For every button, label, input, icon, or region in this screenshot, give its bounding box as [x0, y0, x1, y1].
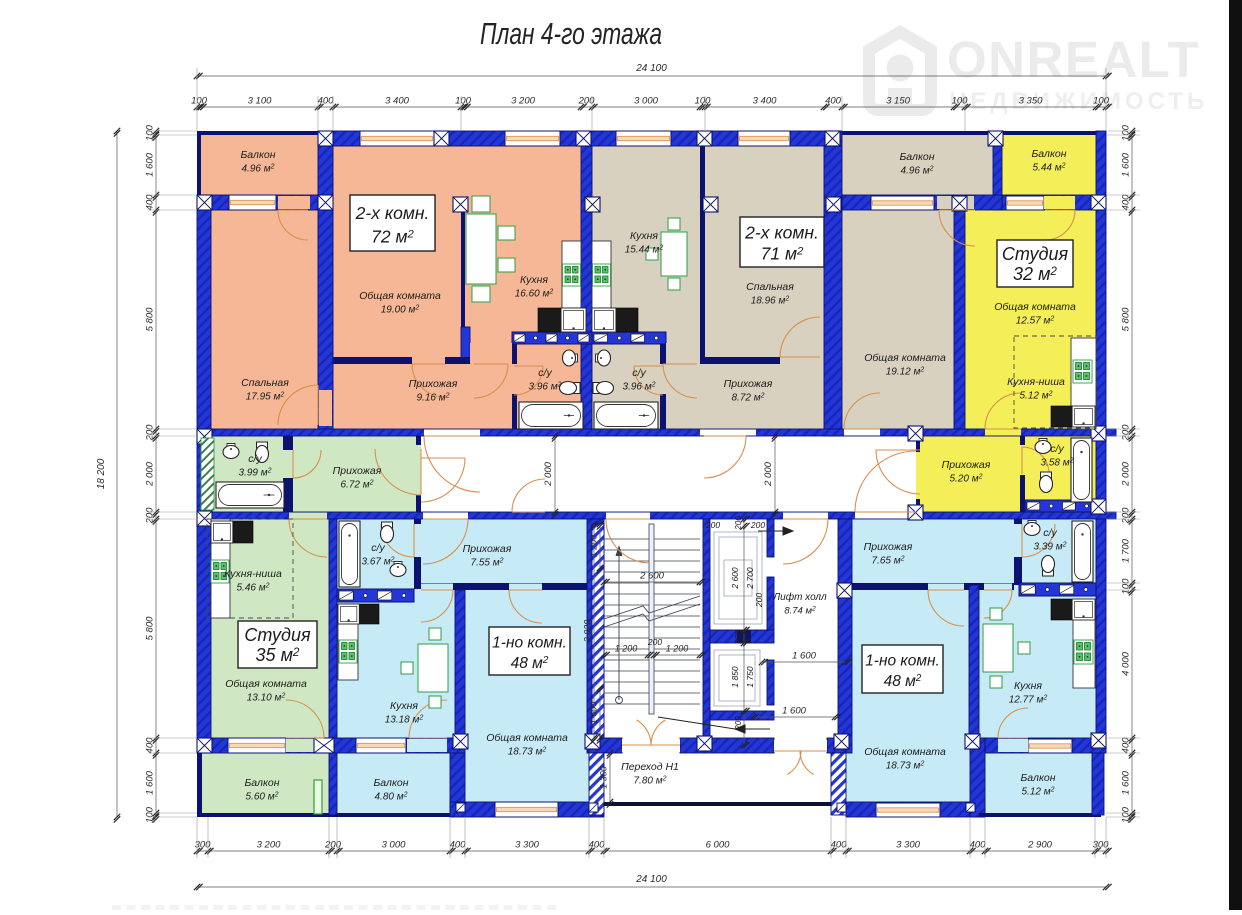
svg-text:400: 400: [970, 840, 987, 851]
svg-text:1 600: 1 600: [1121, 770, 1132, 794]
svg-text:с/у: с/у: [1050, 443, 1064, 455]
svg-text:ONREALT: ONREALT: [947, 31, 1200, 88]
svg-text:1 300: 1 300: [599, 766, 609, 789]
svg-text:13.18 м2: 13.18 м2: [385, 715, 424, 726]
svg-text:6 000: 6 000: [706, 840, 730, 851]
svg-text:1 850: 1 850: [730, 666, 740, 688]
svg-text:200: 200: [578, 96, 596, 107]
svg-text:3 300: 3 300: [896, 840, 920, 851]
svg-text:3.99 м2: 3.99 м2: [238, 468, 271, 479]
svg-text:100: 100: [952, 96, 969, 107]
svg-text:3 400: 3 400: [385, 96, 409, 107]
svg-text:5 800: 5 800: [145, 616, 156, 640]
svg-text:1 600: 1 600: [145, 770, 156, 794]
svg-text:200: 200: [1121, 424, 1132, 442]
svg-text:План 4-го этажа: План 4-го этажа: [480, 16, 662, 51]
svg-text:Спальная: Спальная: [746, 281, 794, 293]
svg-text:100: 100: [1121, 124, 1132, 141]
svg-text:200: 200: [705, 520, 720, 530]
svg-text:3 200: 3 200: [257, 840, 281, 851]
svg-text:400: 400: [1121, 194, 1132, 211]
svg-text:100: 100: [145, 806, 156, 823]
svg-text:400: 400: [145, 737, 156, 754]
svg-text:2 000: 2 000: [1121, 461, 1132, 486]
svg-text:с/у: с/у: [538, 367, 552, 379]
svg-text:400: 400: [145, 194, 156, 211]
svg-text:Общая комната: Общая комната: [225, 678, 307, 690]
svg-text:12.57 м2: 12.57 м2: [1016, 316, 1055, 327]
svg-text:Общая комната: Общая комната: [864, 352, 946, 364]
svg-text:2 700: 2 700: [745, 567, 755, 590]
svg-text:18.73 м2: 18.73 м2: [508, 747, 547, 758]
svg-text:3 200: 3 200: [511, 96, 535, 107]
svg-text:7.80 м2: 7.80 м2: [633, 776, 666, 787]
svg-text:с/у: с/у: [248, 453, 262, 465]
svg-text:7.65 м2: 7.65 м2: [871, 556, 904, 567]
svg-text:1 700: 1 700: [1121, 538, 1132, 562]
svg-text:3 400: 3 400: [753, 96, 777, 107]
svg-text:400: 400: [1121, 737, 1132, 754]
svg-text:3 350: 3 350: [1019, 96, 1043, 107]
svg-text:2 900: 2 900: [1027, 840, 1052, 851]
svg-text:Балкон: Балкон: [1031, 148, 1066, 160]
svg-text:4 000: 4 000: [1121, 651, 1132, 675]
svg-text:3.58 м2: 3.58 м2: [1040, 458, 1073, 469]
svg-text:200: 200: [647, 637, 662, 647]
svg-text:18.73 м2: 18.73 м2: [886, 761, 925, 772]
svg-text:200: 200: [324, 840, 342, 851]
svg-text:8.72 м2: 8.72 м2: [731, 393, 764, 404]
svg-text:400: 400: [318, 96, 335, 107]
svg-text:100: 100: [1121, 578, 1132, 595]
svg-text:Студия: Студия: [244, 625, 311, 645]
svg-text:2-х комн.: 2-х комн.: [355, 203, 430, 223]
svg-text:5 800: 5 800: [145, 307, 156, 331]
svg-text:400: 400: [450, 840, 467, 851]
svg-text:1 200: 1 200: [666, 644, 689, 654]
svg-text:Кухня: Кухня: [390, 700, 418, 712]
svg-text:1 600: 1 600: [589, 702, 599, 725]
svg-text:5 800: 5 800: [1121, 307, 1132, 331]
svg-text:Прихожая: Прихожая: [864, 541, 913, 553]
svg-text:6.72 м2: 6.72 м2: [340, 480, 373, 491]
svg-text:400: 400: [825, 96, 842, 107]
svg-text:1 750: 1 750: [745, 666, 755, 688]
svg-text:1 600: 1 600: [1121, 152, 1132, 176]
svg-text:200: 200: [734, 630, 743, 645]
svg-text:2 000: 2 000: [145, 461, 156, 486]
svg-text:4.80 м2: 4.80 м2: [374, 792, 407, 803]
svg-text:3.39 м2: 3.39 м2: [1033, 542, 1066, 553]
svg-text:4.96 м2: 4.96 м2: [900, 166, 933, 177]
svg-text:8.74 м2: 8.74 м2: [784, 606, 816, 617]
svg-text:1 200: 1 200: [589, 535, 599, 558]
svg-text:200: 200: [1121, 507, 1132, 525]
svg-text:24 100: 24 100: [635, 63, 667, 74]
svg-text:2 000: 2 000: [763, 461, 774, 486]
svg-text:1-но комн.: 1-но комн.: [865, 653, 940, 670]
svg-text:13.10 м2: 13.10 м2: [247, 693, 286, 704]
svg-text:17.95 м2: 17.95 м2: [246, 392, 285, 403]
svg-text:Кухня: Кухня: [630, 230, 658, 242]
svg-text:с/у: с/у: [632, 367, 646, 379]
svg-text:16.60 м2: 16.60 м2: [515, 289, 554, 300]
svg-text:19.00 м2: 19.00 м2: [381, 305, 420, 316]
svg-text:100: 100: [1093, 96, 1110, 107]
svg-text:100: 100: [145, 124, 156, 141]
svg-text:2 000: 2 000: [543, 461, 554, 486]
svg-text:Лифт холл: Лифт холл: [772, 591, 827, 603]
svg-text:3.67 м2: 3.67 м2: [361, 557, 394, 568]
svg-text:19.12 м2: 19.12 м2: [886, 367, 925, 378]
svg-text:3 000: 3 000: [634, 96, 658, 107]
svg-text:Прихожая: Прихожая: [724, 378, 773, 390]
svg-text:Прихожая: Прихожая: [409, 378, 458, 390]
svg-text:200: 200: [754, 593, 764, 608]
svg-text:1 600: 1 600: [792, 651, 816, 662]
svg-text:200: 200: [145, 507, 156, 525]
svg-text:Общая комната: Общая комната: [359, 290, 441, 302]
svg-text:Спальная: Спальная: [241, 377, 289, 389]
svg-text:с/у: с/у: [371, 542, 385, 554]
svg-text:Студия: Студия: [1002, 244, 1069, 264]
svg-text:Кухня: Кухня: [1014, 680, 1042, 692]
svg-text:18 200: 18 200: [96, 458, 107, 489]
svg-text:5.46 м2: 5.46 м2: [236, 583, 269, 594]
svg-text:5.60 м2: 5.60 м2: [245, 792, 278, 803]
svg-text:3 100: 3 100: [248, 96, 272, 107]
svg-text:4.96 м2: 4.96 м2: [241, 164, 274, 175]
svg-text:Балкон: Балкон: [240, 149, 275, 161]
svg-text:Балкон: Балкон: [899, 151, 934, 163]
svg-text:200: 200: [734, 516, 743, 531]
svg-text:100: 100: [1121, 806, 1132, 823]
svg-text:Кухня: Кухня: [520, 274, 548, 286]
svg-text:100: 100: [695, 96, 712, 107]
svg-text:1 200: 1 200: [615, 644, 638, 654]
svg-text:5.44 м2: 5.44 м2: [1032, 163, 1065, 174]
svg-text:200: 200: [750, 520, 765, 530]
svg-text:3.96 м2: 3.96 м2: [622, 382, 655, 393]
svg-text:24 100: 24 100: [635, 874, 667, 885]
svg-text:2-х комн.: 2-х комн.: [744, 223, 819, 243]
svg-text:Общая комната: Общая комната: [994, 301, 1076, 313]
svg-text:Балкон: Балкон: [244, 777, 279, 789]
svg-text:Кухня-ниша: Кухня-ниша: [224, 568, 282, 580]
svg-text:Балкон: Балкон: [1020, 772, 1055, 784]
svg-text:3 020: 3 020: [583, 620, 593, 643]
svg-text:Прихожая: Прихожая: [942, 459, 991, 471]
svg-text:7.55 м2: 7.55 м2: [470, 558, 503, 569]
svg-text:200: 200: [145, 424, 156, 442]
svg-text:1 600: 1 600: [145, 152, 156, 176]
svg-text:18.96 м2: 18.96 м2: [751, 296, 790, 307]
svg-text:Общая комната: Общая комната: [864, 746, 946, 758]
svg-text:Прихожая: Прихожая: [333, 465, 382, 477]
svg-text:НЕДВИЖИМОСТЬ: НЕДВИЖИМОСТЬ: [949, 88, 1208, 115]
svg-text:1-но комн.: 1-но комн.: [492, 635, 567, 652]
svg-text:Кухня-ниша: Кухня-ниша: [1007, 376, 1065, 388]
svg-text:3 150: 3 150: [886, 96, 910, 107]
svg-text:5.12 м2: 5.12 м2: [1021, 787, 1054, 798]
svg-text:3.96 м2: 3.96 м2: [528, 382, 561, 393]
svg-text:5.12 м2: 5.12 м2: [1019, 391, 1052, 402]
svg-text:Переход Н1: Переход Н1: [621, 761, 679, 773]
svg-text:400: 400: [831, 840, 848, 851]
svg-text:5.20 м2: 5.20 м2: [949, 474, 982, 485]
svg-text:15.44 м2: 15.44 м2: [625, 245, 664, 256]
svg-text:3 300: 3 300: [515, 840, 539, 851]
svg-text:2 600: 2 600: [639, 571, 664, 582]
svg-text:9.16 м2: 9.16 м2: [416, 393, 449, 404]
svg-text:100: 100: [455, 96, 472, 107]
svg-text:400: 400: [589, 840, 606, 851]
svg-text:Балкон: Балкон: [373, 777, 408, 789]
svg-text:12.77 м2: 12.77 м2: [1009, 695, 1048, 706]
svg-text:100: 100: [191, 96, 208, 107]
svg-text:с/у: с/у: [1043, 527, 1057, 539]
svg-text:3 000: 3 000: [382, 840, 406, 851]
svg-text:Прихожая: Прихожая: [463, 543, 512, 555]
svg-text:1 600: 1 600: [782, 706, 806, 717]
svg-text:Общая комната: Общая комната: [486, 732, 568, 744]
svg-text:2 600: 2 600: [730, 567, 740, 590]
